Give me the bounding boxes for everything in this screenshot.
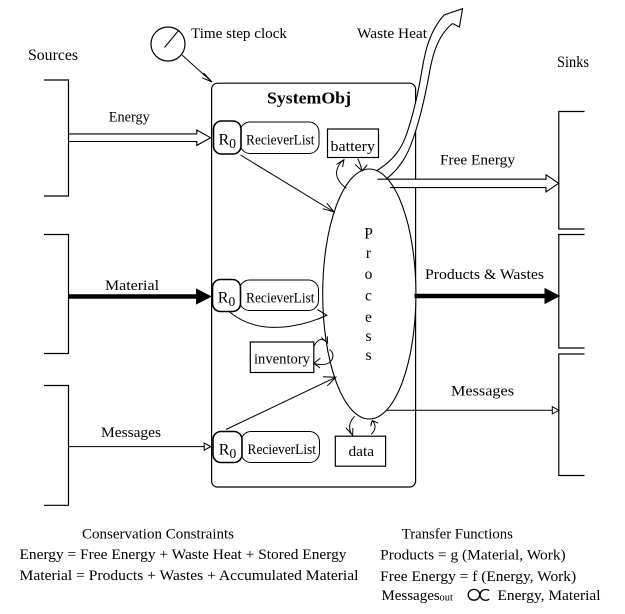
svg-text:c: c: [365, 288, 372, 305]
svg-text:0: 0: [229, 136, 236, 151]
svg-text:battery: battery: [331, 139, 376, 155]
svg-text:Messages: Messages: [101, 425, 161, 441]
svg-text:RecieverList: RecieverList: [246, 291, 315, 307]
svg-text:0: 0: [229, 294, 236, 309]
svg-text:Products & Wastes: Products & Wastes: [425, 267, 544, 283]
svg-text:out: out: [440, 593, 454, 604]
svg-text:Sources: Sources: [28, 47, 78, 64]
svg-text:Waste Heat: Waste Heat: [357, 26, 428, 42]
svg-text:Free Energy = f (Energy, Work): Free Energy = f (Energy, Work): [380, 569, 576, 585]
svg-text:Material: Material: [105, 278, 159, 294]
svg-text:data: data: [349, 444, 375, 460]
svg-text:s: s: [365, 328, 371, 345]
svg-text:Time step clock: Time step clock: [191, 26, 287, 42]
svg-text:P: P: [364, 226, 373, 243]
svg-text:o: o: [365, 266, 373, 283]
svg-text:r: r: [366, 245, 372, 262]
svg-text:s: s: [365, 347, 371, 364]
svg-text:Conservation Constraints: Conservation Constraints: [82, 527, 234, 543]
svg-text:inventory: inventory: [254, 352, 310, 368]
svg-text:e: e: [365, 309, 372, 326]
svg-text:0: 0: [230, 446, 237, 461]
svg-text:Products = g (Material, Work): Products = g (Material, Work): [380, 548, 566, 564]
svg-text:SystemObj: SystemObj: [267, 89, 351, 108]
svg-text:R: R: [218, 290, 229, 307]
svg-text:R: R: [219, 442, 230, 459]
svg-text:Energy: Energy: [109, 110, 150, 126]
svg-text:Free Energy: Free Energy: [440, 153, 516, 169]
svg-text:Energy, Material: Energy, Material: [498, 588, 601, 604]
svg-text:RecieverList: RecieverList: [248, 442, 317, 458]
svg-text:Messages: Messages: [381, 588, 439, 604]
svg-text:Energy = Free Energy + Waste H: Energy = Free Energy + Waste Heat + Stor…: [20, 547, 348, 563]
svg-text:RecieverList: RecieverList: [246, 133, 315, 149]
svg-text:R: R: [219, 131, 230, 148]
svg-text:Material = Products + Wastes: Material = Products + Wastes + Accumulat…: [20, 568, 359, 584]
svg-text:Sinks: Sinks: [557, 54, 589, 71]
svg-text:Transfer Functions: Transfer Functions: [402, 527, 513, 543]
svg-text:Messages: Messages: [451, 384, 514, 400]
